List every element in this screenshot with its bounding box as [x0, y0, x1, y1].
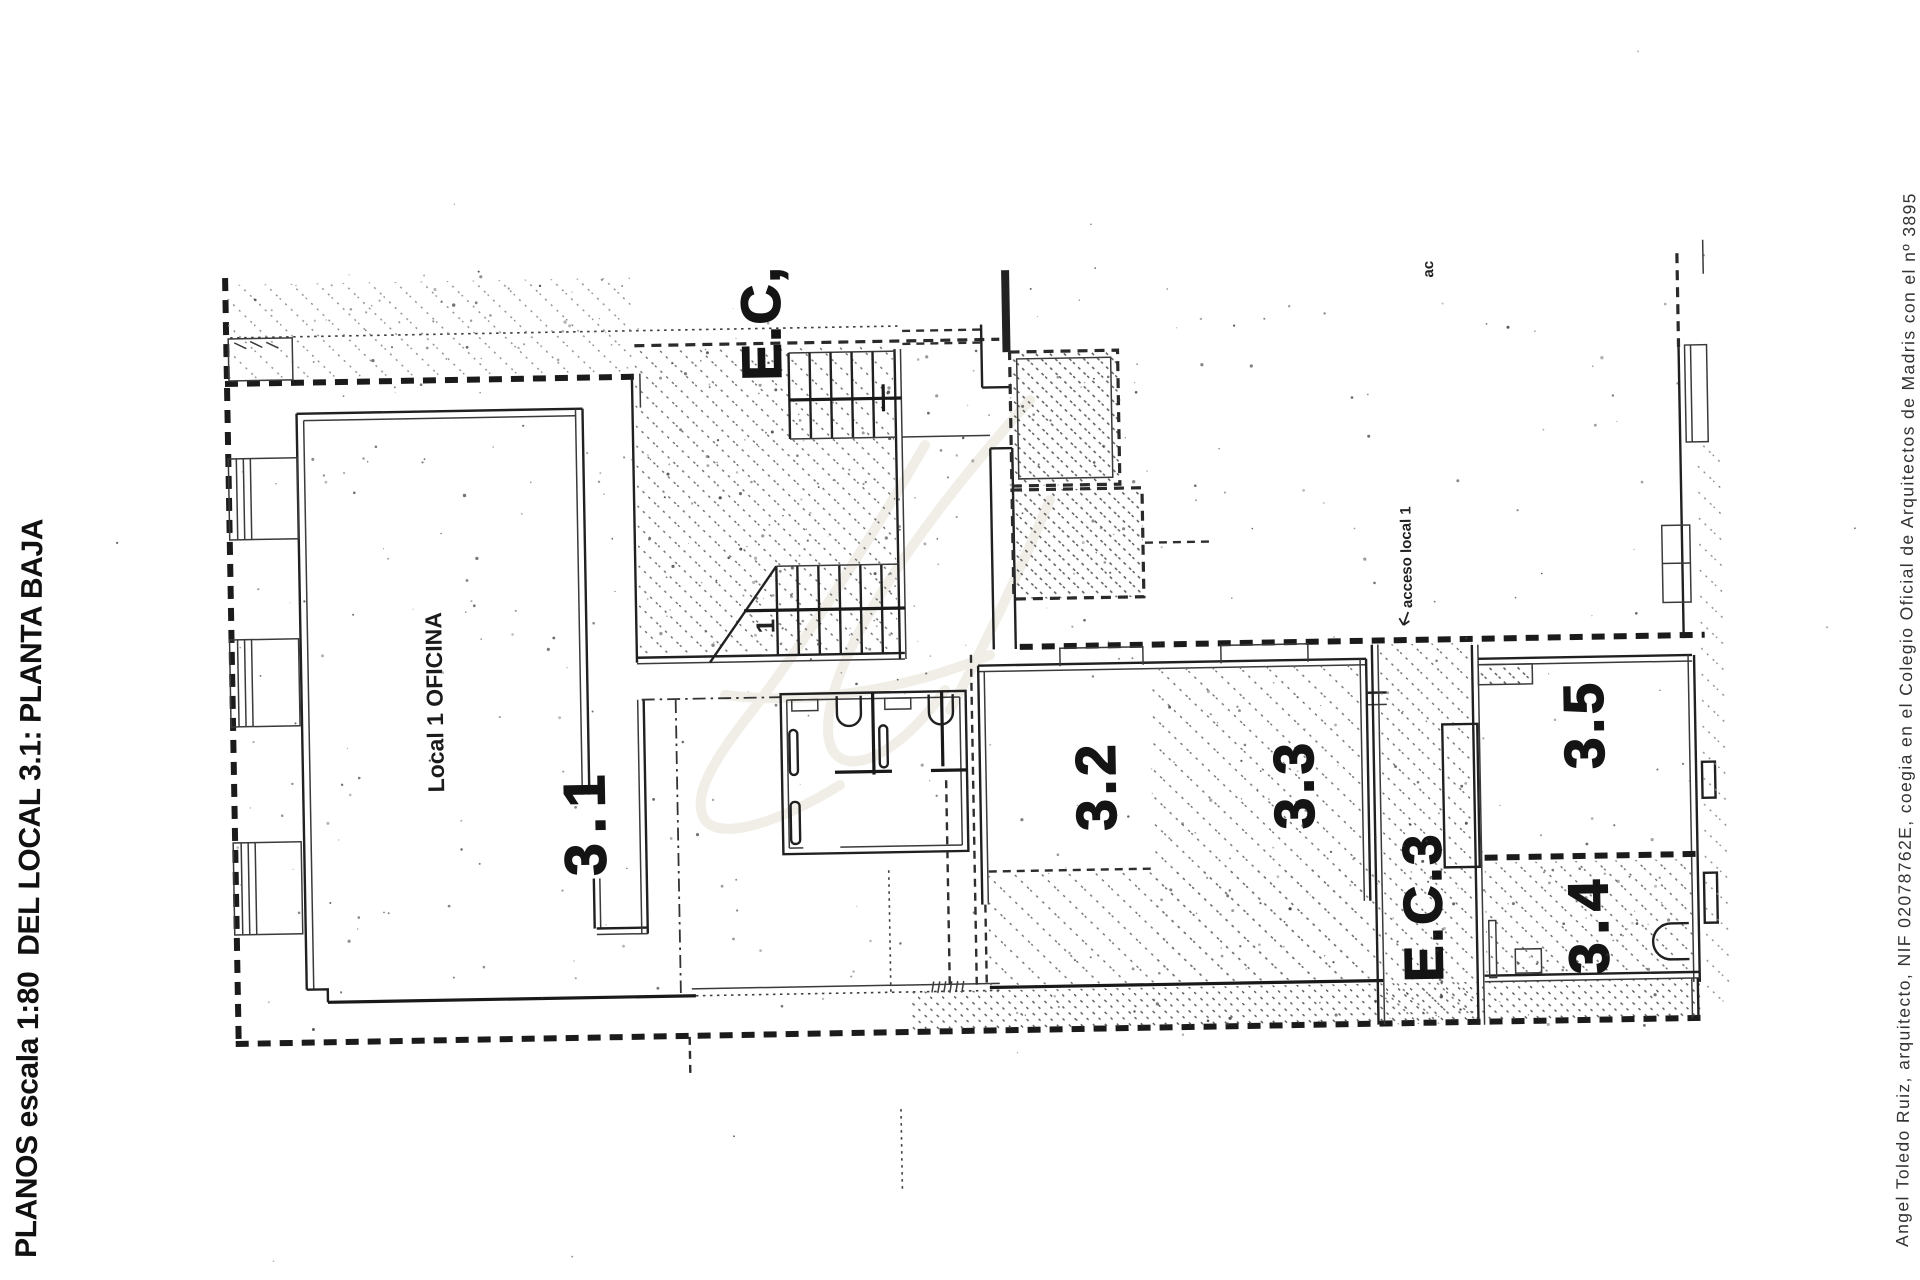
svg-text:ac: ac: [1420, 261, 1437, 278]
svg-text:3.4: 3.4: [1556, 871, 1621, 974]
svg-text:3.5: 3.5: [1551, 678, 1616, 769]
svg-text:1: 1: [750, 619, 780, 634]
svg-text:E.C,: E.C,: [729, 265, 793, 381]
svg-text:Local 1 OFICINA: Local 1 OFICINA: [420, 612, 449, 793]
svg-text:Angel Toledo Ruiz, arquitecto,: Angel Toledo Ruiz, arquitecto, NIF 02078…: [1892, 192, 1919, 1247]
svg-text:acceso local 1: acceso local 1: [1397, 506, 1416, 608]
svg-text:3.2: 3.2: [1063, 740, 1128, 831]
svg-text:PLANOS escala 1:80 DEL LOCAL: PLANOS escala 1:80 DEL LOCAL 3.1: PLANTA…: [10, 519, 49, 1258]
svg-text:3.3: 3.3: [1261, 739, 1326, 830]
svg-text:3.1: 3.1: [552, 764, 619, 876]
svg-text:E.C.3: E.C.3: [1392, 831, 1455, 982]
